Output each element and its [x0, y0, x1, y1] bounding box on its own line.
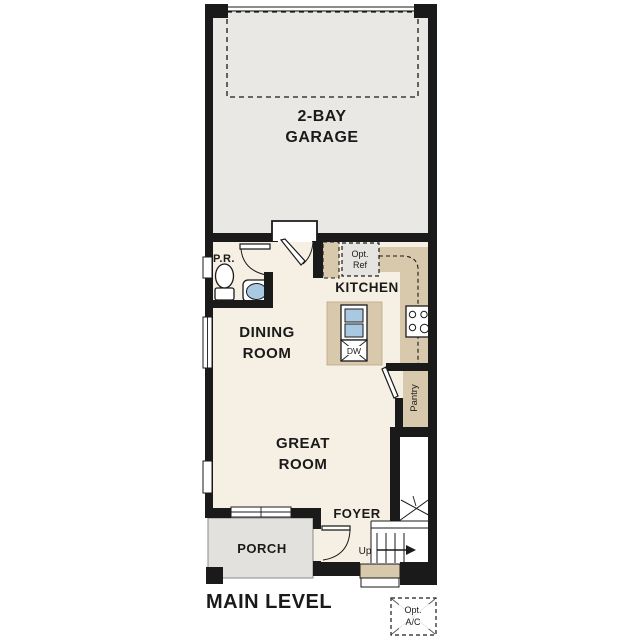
- powder-room-wall: [264, 272, 273, 308]
- garage-left-wall: [205, 4, 213, 242]
- front-wall: [313, 562, 360, 576]
- pantry-side-wall: [395, 398, 403, 427]
- opt-ref-label: Opt.: [351, 249, 368, 259]
- great-room-label: GREAT: [276, 435, 330, 452]
- sink-basin-top: [345, 309, 363, 322]
- floor-plan-page: 2-BAY GARAGE KITCHEN DINING ROOM GREAT R…: [0, 0, 640, 640]
- dishwasher-label: DW: [347, 346, 361, 356]
- kitchen-entry-wall: [313, 238, 323, 278]
- window-powder-room: [203, 257, 212, 278]
- step: [361, 578, 399, 587]
- front-stoop: [360, 564, 400, 587]
- toilet-icon: [216, 264, 234, 288]
- dining-room-label: DINING: [239, 324, 295, 341]
- powder-room-wall: [205, 300, 273, 308]
- pantry-label: Pantry: [409, 384, 420, 412]
- plan-title: MAIN LEVEL: [206, 591, 332, 613]
- front-wall: [400, 562, 437, 585]
- closet-wall: [390, 427, 400, 521]
- optional-cabinet: [323, 242, 339, 278]
- garage-corner-post: [414, 4, 437, 18]
- floor-plan-drawing: 2-BAY GARAGE KITCHEN DINING ROOM GREAT R…: [0, 0, 640, 640]
- dining-room-label: ROOM: [243, 345, 292, 362]
- kitchen-label: KITCHEN: [335, 280, 399, 295]
- great-room-label: ROOM: [279, 456, 328, 473]
- porch-post: [206, 567, 223, 584]
- sink-basin-bottom: [345, 324, 363, 337]
- pantry-top-wall: [386, 363, 437, 371]
- powder-room-door: [240, 244, 270, 249]
- foyer-label: FOYER: [333, 506, 380, 521]
- stair-run: [371, 521, 428, 563]
- garage-front-wall: [312, 233, 437, 242]
- porch-wall: [205, 508, 231, 518]
- opt-ac-label: A/C: [405, 617, 421, 627]
- garage-front-wall: [205, 233, 278, 242]
- sink-icon: [247, 284, 267, 300]
- front-door: [322, 526, 350, 530]
- toilet-tank: [215, 288, 234, 300]
- window-great-room: [203, 461, 212, 493]
- garage-label: GARAGE: [285, 129, 358, 146]
- porch-label: PORCH: [237, 541, 286, 556]
- entry-wall: [313, 508, 321, 529]
- opt-ref-label: Ref: [353, 260, 368, 270]
- garage-step: [272, 221, 317, 241]
- garage-corner-post: [205, 4, 228, 18]
- opt-ac-label: Opt.: [404, 605, 421, 615]
- powder-room-label: P.R.: [213, 253, 235, 265]
- under-stair-closet: [400, 437, 428, 521]
- stoop: [360, 564, 400, 578]
- up-label: Up: [359, 546, 372, 557]
- garage-label: 2-BAY: [297, 108, 346, 125]
- right-wall: [428, 4, 437, 585]
